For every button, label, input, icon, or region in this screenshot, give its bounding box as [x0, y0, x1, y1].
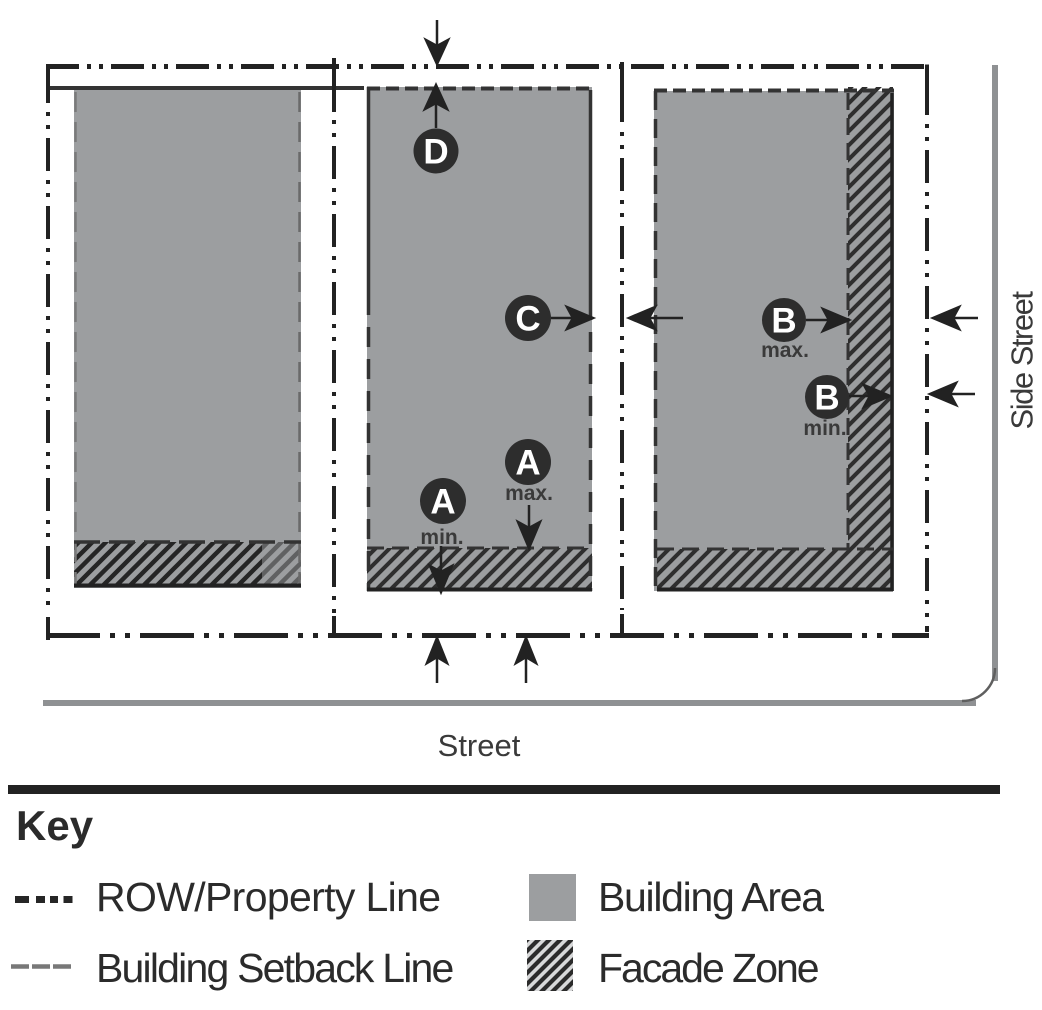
svg-text:Side Street: Side Street — [1005, 291, 1040, 430]
svg-text:min.: min. — [803, 417, 846, 440]
svg-text:A: A — [430, 483, 455, 522]
svg-text:C: C — [515, 300, 540, 339]
svg-text:D: D — [423, 133, 448, 172]
svg-text:min.: min. — [420, 526, 463, 549]
svg-text:max.: max. — [761, 339, 809, 362]
svg-text:B: B — [814, 379, 839, 418]
svg-text:Street: Street — [438, 728, 521, 763]
svg-text:B: B — [771, 302, 796, 341]
svg-text:A: A — [515, 444, 540, 483]
svg-text:max.: max. — [505, 482, 553, 505]
